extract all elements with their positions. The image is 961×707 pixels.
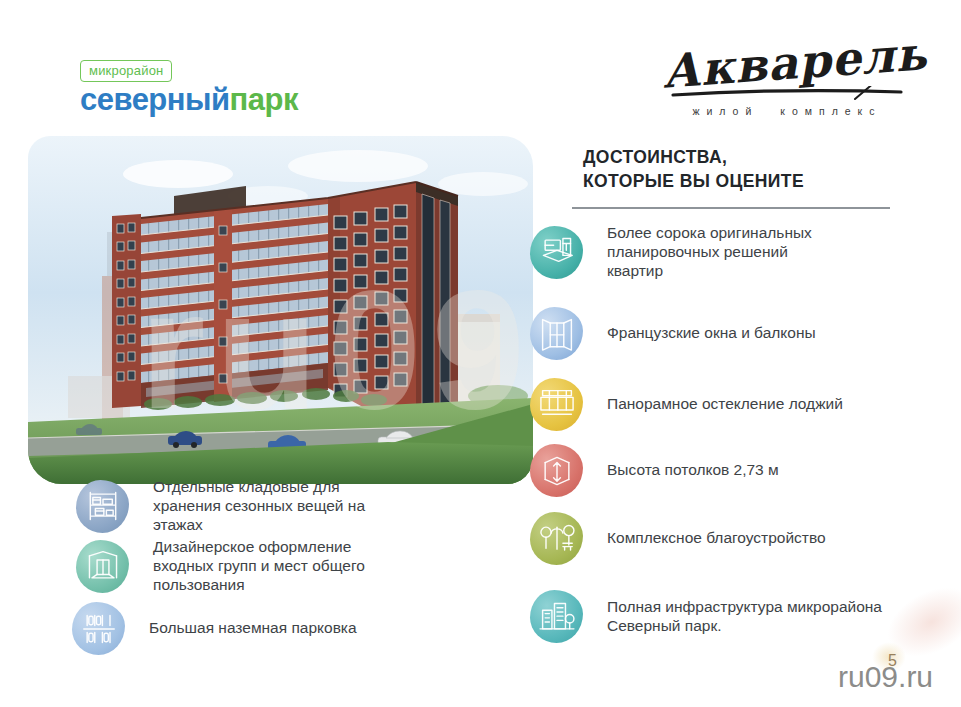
feature-text: Более сорока оригинальных планировочных …	[607, 224, 825, 281]
panoramic-glazing-icon	[530, 378, 583, 431]
landscaping-icon	[530, 512, 583, 565]
feature-item: Дизайнерское оформление входных групп и …	[76, 538, 415, 595]
building-illustration: ru09	[28, 136, 533, 484]
site-watermark: ru09.ru	[838, 660, 933, 694]
feature-item: Большая наземная парковка	[72, 602, 429, 655]
feature-text: Французские окна и балконы	[607, 324, 887, 343]
feature-text: Высота потолков 2,73 м	[607, 461, 897, 480]
complex-subtitle: жилой комплекс	[662, 105, 912, 117]
feature-item: Панорамное остекление лоджий	[530, 378, 897, 431]
parking-icon	[72, 602, 125, 655]
feature-item: Полная инфраструктура микрорайона Северн…	[530, 590, 897, 643]
district-badge: микрорайон	[80, 60, 172, 82]
district-logo: микрорайон северныйпарк	[80, 60, 298, 117]
district-name-part1: северный	[80, 82, 230, 117]
feature-item: Более сорока оригинальных планировочных …	[530, 224, 825, 281]
presentation-slide: микрорайон северныйпарк Акварель жилой к…	[0, 0, 961, 707]
infrastructure-icon	[530, 590, 583, 643]
complex-logo: Акварель жилой комплекс	[662, 36, 912, 117]
feature-text: Полная инфраструктура микрорайона Северн…	[607, 598, 897, 636]
feature-text: Панорамное остекление лоджий	[607, 395, 897, 414]
feature-text: Дизайнерское оформление входных групп и …	[153, 538, 415, 595]
feature-item: Комплексное благоустройство	[530, 512, 897, 565]
page-title-line2: КОТОРЫЕ ВЫ ОЦЕНИТЕ	[583, 170, 804, 194]
french-window-icon	[530, 307, 583, 360]
page-title-line1: ДОСТОИНСТВА,	[583, 146, 804, 170]
ceiling-height-icon	[530, 444, 583, 497]
feature-text: Комплексное благоустройство	[607, 529, 897, 548]
page-title: ДОСТОИНСТВА, КОТОРЫЕ ВЫ ОЦЕНИТЕ	[583, 146, 804, 193]
feature-item: Отдельные кладовые для хранения сезонных…	[76, 478, 405, 535]
heading-divider	[572, 207, 890, 209]
feature-item: Французские окна и балконы	[530, 307, 887, 360]
feature-item: Высота потолков 2,73 м	[530, 444, 897, 497]
entrance-icon	[76, 540, 129, 593]
feature-text: Большая наземная парковка	[149, 619, 429, 638]
district-name-part2: парк	[230, 82, 298, 117]
district-name: северныйпарк	[80, 83, 298, 117]
floorplan-icon	[530, 226, 583, 279]
feature-text: Отдельные кладовые для хранения сезонных…	[153, 478, 405, 535]
storage-icon	[76, 480, 129, 533]
